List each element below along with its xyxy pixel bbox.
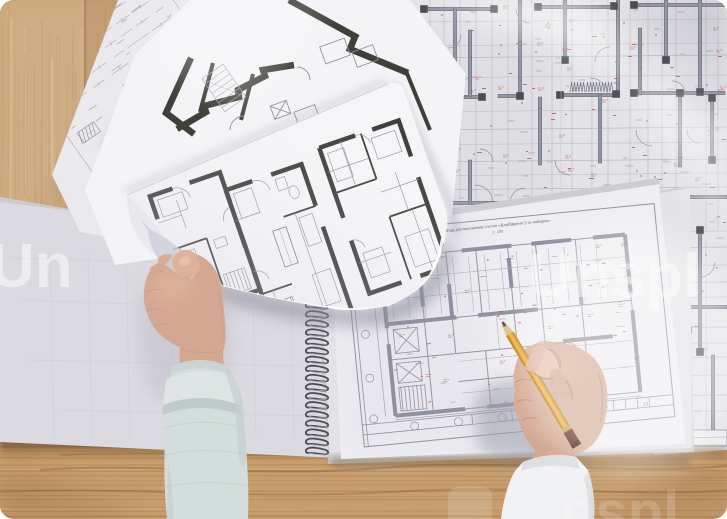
svg-text:nspl: nspl: [560, 480, 679, 519]
svg-text:Un: Un: [0, 232, 73, 301]
svg-text:Unspl: Unspl: [528, 242, 700, 311]
